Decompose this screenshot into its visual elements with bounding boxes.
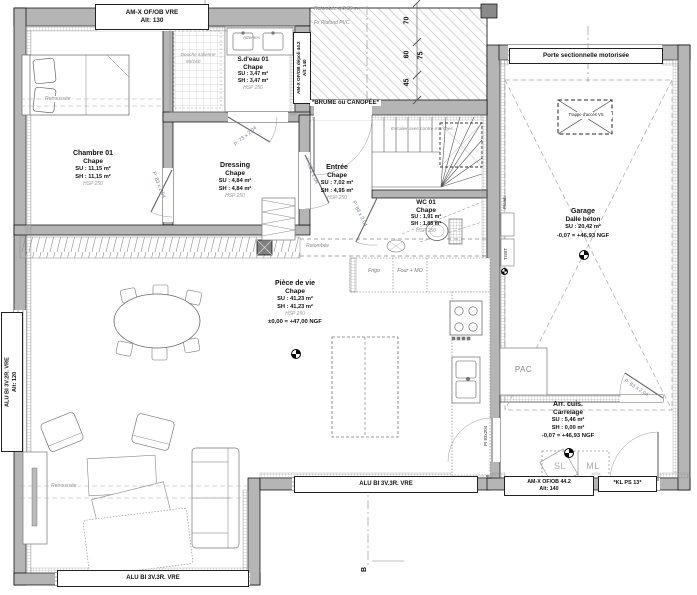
room-sh: SH : 11,15 m² (56, 174, 130, 181)
level-symbol (291, 349, 301, 359)
room-hsp: HSP 250 (201, 193, 269, 200)
window-label-bottom-mid: ALU BI 3V.3R. VRE (294, 476, 478, 493)
window-label-sdeau: AM-X OF/OB dépoli 44.2 Alt: 140 (293, 32, 311, 104)
note-attentes: Attentes (243, 35, 260, 40)
dim-70: 70 (404, 13, 411, 29)
room-hsp: HSP 250 (221, 85, 285, 92)
room-su: SU : 3,47 m² (221, 71, 285, 78)
room-label-wc: WC 01 Chape SU : 1,91 m² SH : 1,85 m² HS… (398, 199, 454, 235)
door-ref: Porte sectionnelle motorisée (543, 52, 629, 60)
shower (170, 27, 225, 112)
appliance-four-mo: Four + MO (391, 268, 429, 274)
window-ref: ALU BI 3V.3R. VRE (359, 481, 412, 489)
note-douche-l2: 90/160 (186, 59, 200, 64)
note-trappe: Trappe d'accès VS (560, 112, 612, 119)
room-label-piece-de-vie: Pièce de vie Chape SU : 41,23 m² SH : 41… (257, 280, 333, 326)
room-label-arr-cuis: Arr. cuis. Carrelage SU : 5,46 m² SH : 0… (529, 401, 607, 440)
note-tgbt: TGBT (504, 243, 509, 265)
room-hsp: HSP 250 (307, 195, 367, 202)
note-douche-l1: Douche italienne (176, 52, 220, 57)
appliance-sl: SL (549, 461, 571, 471)
note-retroussee-chambre: Retroussée (44, 96, 72, 102)
vanity-double-sink (227, 28, 293, 55)
door-ref: *KL PS 13* (613, 480, 641, 487)
floor-plan: Chambre 01 Chape SU : 11,15 m² SH : 11,1… (0, 0, 697, 595)
room-name: S.d'eau 01 (221, 56, 285, 64)
note-retombee-235: Retombée à 2,35 m (314, 6, 358, 12)
room-sh: SH : 4,84 m² (201, 186, 269, 193)
level-symbol (579, 250, 589, 260)
note-fx-plafond: Fx Plafond PVC (314, 20, 350, 26)
window-label-arr-cuis: AM-X OF/OB 44.2 Alt: 140 (504, 476, 594, 496)
window-ref: ALU BI 3V.3R. VRE (126, 575, 179, 583)
room-name: Chambre 01 (56, 150, 130, 158)
level-symbol (501, 268, 508, 275)
window-label-bottom-left: ALU BI 3V.3R. VRE (57, 570, 249, 587)
room-su: SU : 41,23 m² (257, 296, 333, 303)
note-retroussee-living: Retroussée (50, 483, 78, 489)
door-label-kl: *KL PS 13* (598, 476, 657, 492)
dining-set (114, 285, 202, 360)
note-plomb: Plomb. (503, 190, 508, 214)
garage-door-label: Porte sectionnelle motorisée (509, 48, 663, 64)
room-hsp: HSP 250 (398, 228, 454, 235)
room-name: Pièce de vie (257, 280, 333, 288)
note-brume-canopee: *BRUME ou CANOPÉE* (310, 100, 381, 106)
window-ref: ALU BI 3V.2R. VRE (5, 357, 12, 407)
room-level: -0,07 = +46,93 NGF (529, 433, 607, 440)
appliance-ml: ML (582, 461, 604, 471)
room-hsp: HSP 250 (257, 311, 333, 318)
room-sh: SH : 41,23 m² (257, 304, 333, 311)
room-label-sdeau: S.d'eau 01 Chape SU : 3,47 m² SH : 3,47 … (221, 56, 285, 92)
room-sh: SH : 1,85 m² (398, 221, 454, 228)
kitchen (332, 258, 490, 475)
plan-linework (0, 0, 697, 595)
dim-45: 45 (404, 75, 411, 91)
window-ref: AM-X OF/OB 44.2 (527, 479, 571, 486)
room-su: SU : 20,42 m² (544, 224, 622, 231)
room-name: WC 01 (398, 199, 454, 207)
dim-75: 75 (418, 48, 425, 64)
room-name: Arr. cuis. (529, 401, 607, 409)
room-floor: Chape (398, 207, 454, 215)
living-furniture (23, 411, 239, 576)
note-retombee: Retombée (305, 243, 330, 249)
room-sh: SH : 3,47 m² (221, 78, 285, 85)
wardrobe-band (20, 237, 487, 258)
floor-drain (387, 240, 405, 252)
room-sh: SH : 0,00 m² (529, 425, 607, 432)
room-name: Entrée (307, 164, 367, 172)
room-name: Garage (544, 208, 622, 216)
appliance-pac: PAC (501, 365, 546, 374)
room-label-garage: Garage Dalle béton SU : 20,42 m² -0,07 =… (544, 208, 622, 240)
note-escalier: Escalier avec contre-marches (391, 126, 453, 131)
room-name: Dressing (201, 162, 269, 170)
window-alt: Alt: 140 (539, 486, 558, 493)
window-alt: Alt: 120 (12, 372, 19, 392)
window-alt: Alt: 140 (302, 60, 308, 77)
window-label-top: AM-X OF/OB VRE Alt: 130 (95, 4, 209, 30)
room-su: SU : 11,15 m² (56, 166, 130, 173)
window-label-left: ALU BI 3V.2R. VRE Alt: 120 (1, 312, 23, 452)
dim-60: 60 (404, 47, 411, 63)
room-floor: Chape (221, 64, 285, 72)
column (257, 240, 272, 255)
appliance-frigo: Frigo (356, 268, 392, 274)
room-su: SU : 1,91 m² (398, 214, 454, 221)
level-symbol (564, 448, 574, 458)
room-su: SU : 4,84 m² (201, 178, 269, 185)
room-level: -0,07 = +46,93 NGF (544, 233, 622, 240)
room-level: ±0,00 = +47,00 NGF (257, 319, 333, 326)
room-label-dressing: Dressing Chape SU : 4,84 m² SH : 4,84 m²… (201, 162, 269, 200)
room-su: SU : 5,46 m² (529, 417, 607, 424)
shelf-unit (262, 198, 295, 240)
window-ref: AM-X OF/OB VRE (126, 9, 178, 17)
door-tag-pi: PI 83x204 (484, 420, 489, 452)
room-hsp: HSP 250 (56, 181, 130, 188)
room-label-chambre: Chambre 01 Chape SU : 11,15 m² SH : 11,1… (56, 150, 130, 188)
room-sh: SH : 4,95 m² (307, 188, 367, 195)
window-alt: Alt: 130 (141, 17, 164, 25)
section-marker-b: B (361, 567, 368, 572)
